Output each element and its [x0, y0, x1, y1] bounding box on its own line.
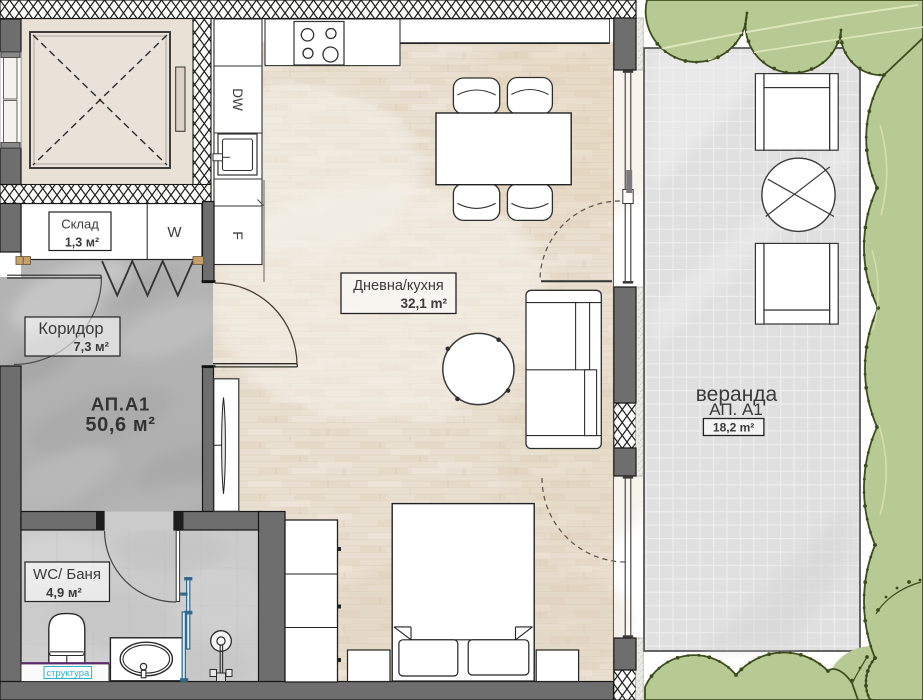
- svg-text:Склад: Склад: [61, 217, 99, 232]
- svg-text:7,3 м²: 7,3 м²: [73, 339, 109, 354]
- svg-text:АП. А1: АП. А1: [709, 400, 763, 419]
- svg-text:структура: структура: [46, 668, 90, 679]
- svg-text:DW: DW: [230, 88, 245, 111]
- svg-text:1,3 м²: 1,3 м²: [65, 236, 99, 250]
- svg-text:АП.А1: АП.А1: [91, 394, 150, 415]
- svg-text:Коридор: Коридор: [38, 320, 103, 338]
- svg-text:F: F: [230, 231, 246, 240]
- svg-text:Дневна/кухня: Дневна/кухня: [353, 278, 444, 294]
- svg-text:4,9 м²: 4,9 м²: [46, 585, 82, 600]
- svg-text:W: W: [167, 224, 182, 241]
- svg-text:WC/ Баня: WC/ Баня: [33, 566, 101, 583]
- svg-text:50,6 м²: 50,6 м²: [85, 414, 155, 436]
- svg-text:18,2 m²: 18,2 m²: [713, 421, 754, 435]
- svg-text:32,1 m²: 32,1 m²: [400, 296, 447, 311]
